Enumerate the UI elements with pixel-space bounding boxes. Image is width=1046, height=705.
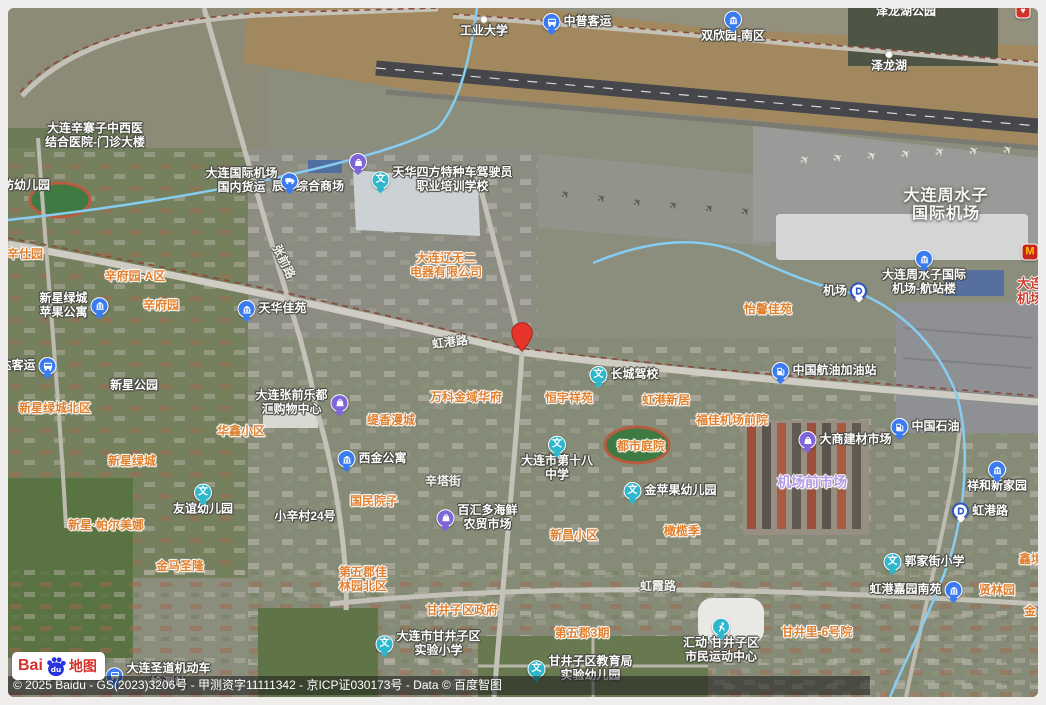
diwujun-3qi-label[interactable]: 第五郡3期: [555, 627, 610, 641]
edu-icon: 文: [589, 366, 607, 384]
edu-icon: 文: [371, 171, 389, 189]
xinta-street-label: 辛塔街: [425, 475, 461, 489]
huaxin-xiaoqu-label[interactable]: 华鑫小区: [217, 425, 265, 439]
zhoushuizi-airport-text: 大连周水子国际机场: [903, 188, 988, 225]
mcdonalds[interactable]: M: [1022, 244, 1039, 261]
guomin-yuanzi-text: 国民院子: [350, 495, 398, 509]
xinxing-gongyuan-label[interactable]: 新星公园: [110, 379, 158, 393]
jichangqian-shichang-text: 机场前市场: [777, 474, 847, 490]
fang-youeryuan-label[interactable]: 坊幼儿园: [8, 179, 50, 193]
building-icon: [91, 297, 109, 315]
xinta-street-text: 辛塔街: [425, 475, 461, 489]
xinxing-lvcheng-beiqu-text: 新星绿城北区: [19, 402, 91, 416]
tianhua-jiayuan-label[interactable]: 天华佳苑: [237, 300, 306, 318]
jinpingguo-kindergarten-label[interactable]: 文金苹果幼儿园: [623, 482, 716, 500]
xinfuyuan-text: 辛府园: [143, 299, 179, 313]
xinfuyuan-a-text: 辛府园-A区: [105, 270, 166, 284]
fujia-jichang-qianyuan-text: 福佳机场前院: [696, 414, 768, 428]
baidu-paw-icon: du: [45, 655, 67, 677]
no18-middle-school-label[interactable]: 文大连市第十八中学: [521, 436, 593, 483]
guojiajie-primary-text: 郭家街小学: [904, 555, 964, 569]
tixiang-mancheng-label[interactable]: 缇香漫城: [367, 414, 415, 428]
map-canvas[interactable]: ✈ ✈ ✈ ✈ ✈ ✈ ✈ ✈ ✈ ✈ ✈ ✈ ✈ 工业大学中普客运双欣园-南区…: [8, 8, 1038, 697]
dot-icon: [480, 16, 488, 24]
page: { "map": { "attribution": "© 2025 Baidu …: [0, 0, 1046, 705]
jin-partial-text: 金: [1024, 605, 1036, 619]
building-icon: [988, 461, 1006, 479]
svg-text:du: du: [51, 665, 61, 674]
diwujun-jialinyuan-beiqu-label[interactable]: 第五郡佳林园北区: [339, 566, 387, 594]
ganjingli-6-hao-yuan-label[interactable]: 甘井里-6号院: [782, 626, 853, 640]
youyi-kindergarten-label[interactable]: 文友谊幼儿园: [173, 484, 233, 517]
jichang-station-text: 机场: [823, 284, 847, 298]
dropped-pin-marker[interactable]: [511, 322, 533, 352]
honggang-jiayuan-nanyuan-text: 虹港嘉园南苑: [869, 583, 941, 597]
hangyou-gas-label[interactable]: 中国航油加油站: [771, 362, 876, 380]
gongye-daxue-text: 工业大学: [460, 25, 508, 39]
zhongguo-shiyou-label[interactable]: 中国石油: [890, 418, 959, 436]
xinshiyuan-text: 辛仕园: [8, 248, 43, 262]
ganjingli-6-hao-yuan-text: 甘井里-6号院: [782, 626, 853, 640]
diwujun-3qi-text: 第五郡3期: [555, 627, 610, 641]
building-icon: [945, 581, 963, 599]
da-keyun-text: 达客运: [8, 359, 36, 373]
citizens-sports-center-label[interactable]: 汇动·甘井子区市民运动中心: [683, 618, 759, 665]
honggang-xinju-label[interactable]: 虹港新居: [642, 394, 690, 408]
zhoushuizi-airport-label: 大连周水子国际机场: [903, 188, 988, 225]
gas-icon: [771, 362, 789, 380]
xianlin-yuan-label[interactable]: 贤林园: [979, 584, 1015, 598]
dashang-jiancai-text: 大商建材市场: [819, 433, 891, 447]
hengyu-xiangyuan-label[interactable]: 恒宇祥苑: [545, 392, 593, 406]
ganjingzi-experimental-primary-label[interactable]: 文大连市甘井子区实验小学: [375, 630, 480, 658]
baidu-logo-text-bai: Bai: [18, 657, 43, 675]
changcheng-jiaxiao-label[interactable]: 文长城驾校: [589, 366, 658, 384]
xinzhaizi-hospital-text: 大连辛寨子中西医结合医院-门诊大楼: [45, 122, 145, 150]
zhongpu-keyun-text: 中普客运: [563, 15, 611, 29]
jinpingguo-kindergarten-text: 金苹果幼儿园: [644, 484, 716, 498]
hongganglu-station-label[interactable]: 虹港路: [952, 503, 1008, 520]
tianhua-driving-school-label[interactable]: 文天华四方特种车驾驶员职业培训学校: [371, 166, 512, 194]
xinxing-paermeina-text: 新星·帕尔美娜: [68, 519, 144, 533]
dalian-jichang-red-text: 大连机场: [1017, 277, 1038, 307]
xianlin-yuan-text: 贤林园: [979, 584, 1015, 598]
airport-terminal-text: 大连周水子国际机场-航站楼: [882, 269, 966, 297]
dushi-tingyuan-text: 都市庭院: [617, 440, 665, 454]
baihuiduo-market-text: 百汇多海鲜农贸市场: [457, 504, 517, 532]
truck-icon: [281, 172, 299, 190]
hangyou-gas-text: 中国航油加油站: [792, 364, 876, 378]
tianhua-driving-school-text: 天华四方特种车驾驶员职业培训学校: [392, 166, 512, 194]
ganjingzi-experimental-primary-text: 大连市甘井子区实验小学: [396, 630, 480, 658]
xiaoxincun-24-text: 小辛村24号: [274, 510, 335, 524]
jinma-shenglong-label[interactable]: 金马圣隆: [156, 560, 204, 574]
yixin-jiayuan-label[interactable]: 怡馨佳苑: [744, 303, 792, 317]
da-keyun-label[interactable]: 达客运: [8, 357, 57, 375]
building-icon: [237, 300, 255, 318]
dalian-jichang-red-label[interactable]: 大连机场: [1017, 277, 1038, 307]
edu-icon: 文: [623, 482, 641, 500]
sport-icon: [712, 618, 730, 636]
shop-icon: [331, 394, 349, 412]
ganjingzi-government-text: 甘井子区政府: [426, 604, 498, 618]
xianghe-xinjiayuan-label[interactable]: 祥和新家园: [967, 461, 1027, 494]
xinfuyuan-label[interactable]: 辛府园: [143, 299, 179, 313]
metro-icon: [952, 503, 969, 520]
ganlan-ji-label[interactable]: 橄榄季: [664, 525, 700, 539]
edu-icon: 文: [883, 553, 901, 571]
bus-icon: [39, 357, 57, 375]
fang-youeryuan-text: 坊幼儿园: [8, 179, 50, 193]
huaxin-xiaoqu-text: 华鑫小区: [217, 425, 265, 439]
xijin-gongyu-text: 西金公寓: [358, 452, 406, 466]
honggang-jiayuan-nanyuan-label[interactable]: 虹港嘉园南苑: [869, 581, 962, 599]
vanke-jinyu-huafu-label[interactable]: 万科金域华府: [430, 391, 502, 405]
xinxing-paermeina-label[interactable]: 新星·帕尔美娜: [68, 519, 144, 533]
chenhua-shop-icon[interactable]: [349, 153, 367, 171]
airport-cargo-label[interactable]: 大连国际机场国内货运: [205, 167, 298, 195]
edu-icon: 文: [548, 436, 566, 454]
xijin-gongyu-label[interactable]: 西金公寓: [337, 450, 406, 468]
honggang-xinju-text: 虹港新居: [642, 394, 690, 408]
zelonghu-text: 泽龙湖: [871, 60, 907, 74]
liaowuer-electric-text: 大连辽无二电器有限公司: [410, 252, 482, 280]
shop-icon: [436, 509, 454, 527]
baidu-logo-text-ditu: 地图: [69, 656, 97, 676]
liaowuer-electric-label[interactable]: 大连辽无二电器有限公司: [410, 252, 482, 280]
zelonghu-label[interactable]: 泽龙湖: [871, 51, 907, 74]
vanke-jinyu-huafu-text: 万科金域华府: [430, 391, 502, 405]
xinxing-gongyuan-text: 新星公园: [110, 379, 158, 393]
guomin-yuanzi-label[interactable]: 国民院子: [350, 495, 398, 509]
no18-middle-school-text: 大连市第十八中学: [521, 455, 593, 483]
jichang-station-label[interactable]: 机场: [823, 283, 867, 300]
yixin-jiayuan-text: 怡馨佳苑: [744, 303, 792, 317]
ledohui-mall-text: 大连张前乐都汇购物中心: [255, 389, 327, 417]
diwujun-jialinyuan-beiqu-text: 第五郡佳林园北区: [339, 566, 387, 594]
hongxia-road-text: 虹霞路: [640, 580, 676, 594]
hongganglu-station-text: 虹港路: [972, 504, 1008, 518]
dashang-jiancai-label[interactable]: 大商建材市场: [798, 431, 891, 449]
mcd-icon: M: [1022, 244, 1039, 261]
xinxing-lvcheng-text: 新星绿城: [108, 455, 156, 469]
baidu-logo[interactable]: Bai du 地图: [12, 652, 105, 680]
xinchang-xiaoqu-text: 新昌小区: [550, 529, 598, 543]
zhongguo-shiyou-text: 中国石油: [911, 420, 959, 434]
xiaoxincun-24-label[interactable]: 小辛村24号: [274, 510, 335, 524]
tixiang-mancheng-text: 缇香漫城: [367, 414, 415, 428]
jin-partial-label[interactable]: 金: [1024, 605, 1036, 619]
xinxing-lvcheng-label[interactable]: 新星绿城: [108, 455, 156, 469]
metro-icon: [850, 283, 867, 300]
building-icon: [337, 450, 355, 468]
fujia-jichang-qianyuan-label[interactable]: 福佳机场前院: [696, 414, 768, 428]
dot-icon: [885, 51, 893, 59]
redpin-icon: ♥: [1016, 8, 1031, 19]
zhongpu-keyun-label[interactable]: 中普客运: [542, 13, 611, 31]
tianhua-jiayuan-text: 天华佳苑: [258, 302, 306, 316]
xinxing-apple-label[interactable]: 新星绿城苹果公寓: [39, 292, 108, 320]
ganjingzi-government-label[interactable]: 甘井子区政府: [426, 604, 498, 618]
citizens-sports-center-text: 汇动·甘井子区市民运动中心: [683, 637, 759, 665]
xinfuyuan-a-label[interactable]: 辛府园-A区: [105, 270, 166, 284]
changcheng-jiaxiao-text: 长城驾校: [610, 368, 658, 382]
edu-icon: 文: [375, 635, 393, 653]
hengyu-xiangyuan-text: 恒宇祥苑: [545, 392, 593, 406]
building-icon: [724, 11, 742, 29]
ledohui-mall-label[interactable]: 大连张前乐都汇购物中心: [255, 389, 348, 417]
edu-icon: 文: [194, 484, 212, 502]
dushi-tingyuan-label[interactable]: 都市庭院: [617, 440, 665, 454]
copyright-text: © 2025 Baidu - GS(2023)3206号 - 甲测资字11111…: [13, 678, 502, 692]
bus-icon: [542, 13, 560, 31]
copyright-bar: © 2025 Baidu - GS(2023)3206号 - 甲测资字11111…: [8, 676, 870, 695]
airport-cargo-text: 大连国际机场国内货运: [205, 167, 277, 195]
zelonghu-gongyuan-label[interactable]: 泽龙湖公园: [876, 8, 936, 19]
partial-red-marker[interactable]: ♥: [1016, 8, 1031, 19]
xinjing-text: 鑫境: [1019, 553, 1038, 567]
jinma-shenglong-text: 金马圣隆: [156, 560, 204, 574]
zelonghu-gongyuan-text: 泽龙湖公园: [876, 8, 936, 19]
hongxia-road-label: 虹霞路: [640, 580, 676, 594]
guojiajie-primary-label[interactable]: 文郭家街小学: [883, 553, 964, 571]
gas-icon: [890, 418, 908, 436]
gongye-daxue-label[interactable]: 工业大学: [460, 16, 508, 39]
xinzhaizi-hospital-label[interactable]: 大连辛寨子中西医结合医院-门诊大楼: [45, 122, 145, 150]
jichangqian-shichang-label[interactable]: 机场前市场: [777, 474, 847, 490]
airport-terminal-label[interactable]: 大连周水子国际机场-航站楼: [882, 250, 966, 297]
ganlan-ji-text: 橄榄季: [664, 525, 700, 539]
shuangxinyuan-nanqu-label[interactable]: 双欣园-南区: [701, 11, 765, 44]
baihuiduo-market-label[interactable]: 百汇多海鲜农贸市场: [436, 504, 517, 532]
xinxing-apple-text: 新星绿城苹果公寓: [39, 292, 87, 320]
building-icon: [915, 250, 933, 268]
shop-icon: [798, 431, 816, 449]
xinjing-label[interactable]: 鑫境: [1019, 553, 1038, 567]
xinxing-lvcheng-beiqu-label[interactable]: 新星绿城北区: [19, 402, 91, 416]
shop-icon: [349, 153, 367, 171]
xinshiyuan-label[interactable]: 辛仕园: [8, 248, 43, 262]
xinchang-xiaoqu-label[interactable]: 新昌小区: [550, 529, 598, 543]
